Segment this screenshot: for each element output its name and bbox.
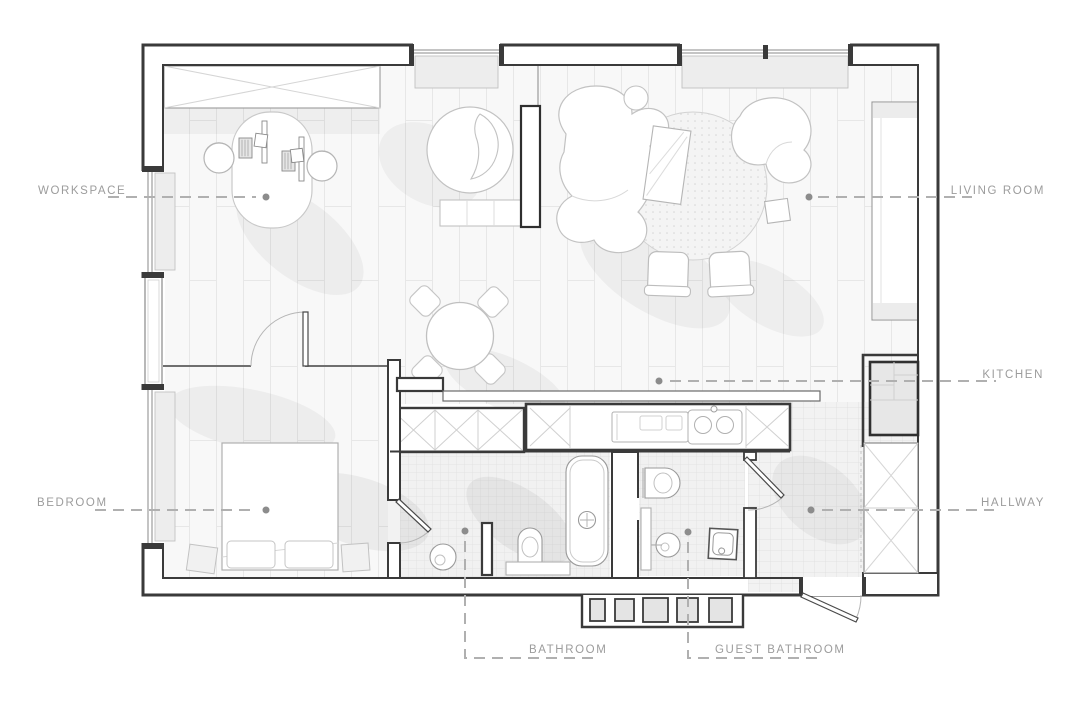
- hallway-wardrobe: [861, 443, 918, 573]
- window-left-top: [141, 171, 175, 272]
- vanity-counter: [506, 562, 570, 575]
- kitchen-zone: [390, 404, 790, 452]
- office-chair-left: [204, 143, 234, 173]
- toilet: [518, 528, 542, 562]
- workspace-wardrobe: [164, 66, 380, 108]
- service-bump-out: [582, 595, 743, 627]
- bathtub: [566, 456, 608, 566]
- round-armchair: [427, 107, 513, 193]
- label-hallway: HALLWAY: [981, 497, 1045, 510]
- kitchen-sink: [688, 406, 742, 444]
- label-kitchen: KITCHEN: [982, 369, 1044, 382]
- dining-table: [427, 303, 494, 370]
- label-guest-bathroom: GUEST BATHROOM: [715, 644, 846, 657]
- side-table: [765, 198, 791, 223]
- shower-basin: [708, 528, 738, 559]
- pillow: [227, 541, 275, 568]
- guest-toilet: [643, 468, 680, 498]
- label-bathroom: BATHROOM: [529, 644, 607, 657]
- floor-plan-canvas: WORKSPACE LIVING ROOM KITCHEN BEDROOM HA…: [0, 0, 1080, 702]
- label-living-room: LIVING ROOM: [951, 185, 1045, 198]
- closet-row: [390, 408, 524, 452]
- shaft-box: [870, 362, 918, 435]
- sideboard: [440, 200, 522, 226]
- floor-plan-drawing: [0, 0, 1080, 702]
- oven: [612, 412, 688, 442]
- label-bedroom: BEDROOM: [37, 497, 108, 510]
- bed: [222, 443, 338, 570]
- window-top-right: [680, 43, 850, 88]
- kitchen-counter: [526, 404, 790, 450]
- nightstand-left: [186, 544, 217, 574]
- desk: [232, 112, 312, 228]
- nightstand-right: [341, 543, 370, 572]
- entry-door: [799, 577, 866, 622]
- round-basin: [430, 544, 456, 570]
- window-left-middle: [141, 278, 165, 384]
- wall-shelving-unit: [872, 102, 918, 320]
- window-left-bottom: [141, 390, 175, 543]
- pillow: [285, 541, 333, 568]
- window-top-left: [413, 43, 500, 88]
- label-workspace: WORKSPACE: [38, 185, 126, 198]
- office-chair-right: [307, 151, 337, 181]
